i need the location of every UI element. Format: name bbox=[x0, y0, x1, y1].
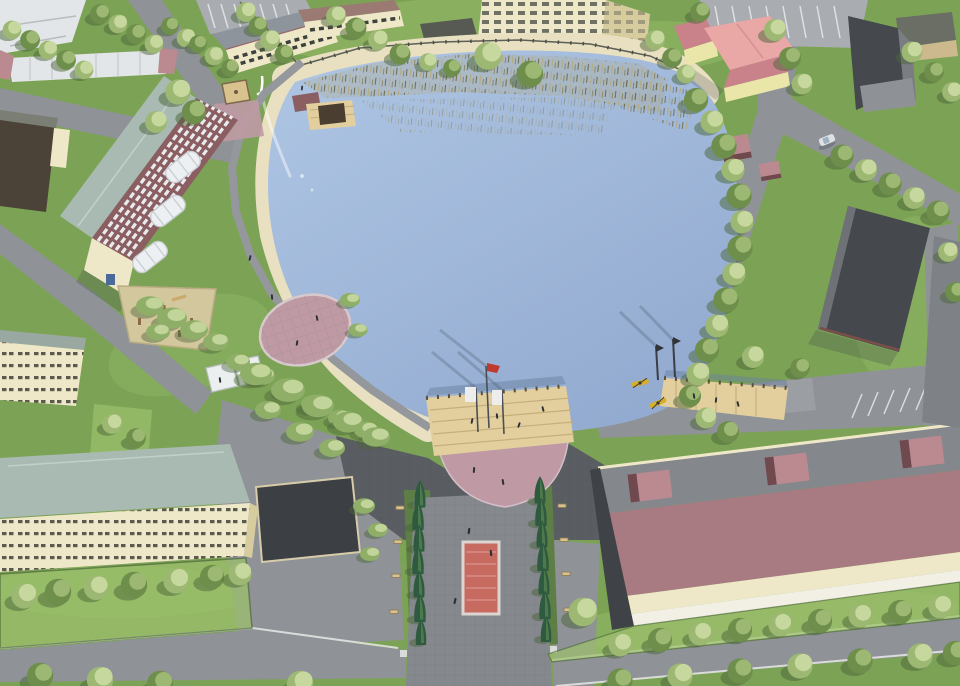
white-flag bbox=[465, 387, 476, 402]
boat-pier bbox=[306, 100, 356, 130]
aerial-render-stage bbox=[0, 0, 960, 686]
entrance-door bbox=[106, 274, 115, 285]
red-carpet-strip bbox=[463, 542, 499, 614]
dark-brown-building bbox=[0, 118, 56, 212]
white-flag bbox=[492, 390, 502, 405]
boathouse bbox=[318, 103, 346, 125]
aerial-render bbox=[0, 0, 960, 686]
gazebo bbox=[222, 80, 250, 104]
dark-annex bbox=[256, 477, 360, 562]
